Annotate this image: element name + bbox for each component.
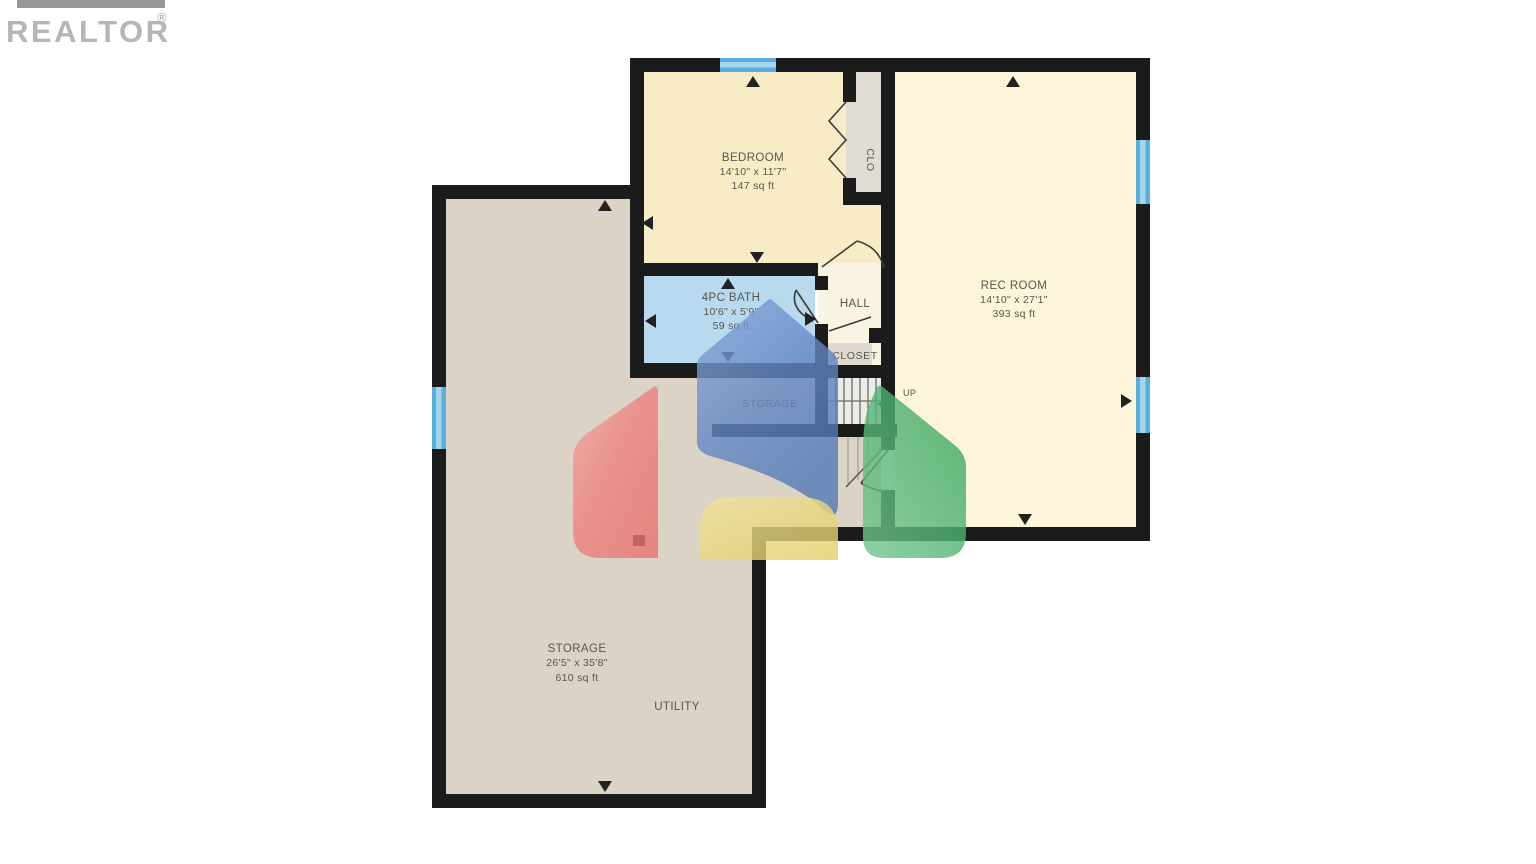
window	[1136, 377, 1150, 433]
wall-storage-top	[432, 185, 644, 199]
wall-storage-left	[432, 185, 446, 808]
floor-plan-image: BEDROOM 14'10" x 11'7" 147 sq ft CLO REC…	[0, 0, 1536, 864]
wall-right	[1136, 58, 1150, 541]
wall-clo-top-stub	[843, 72, 856, 102]
bedroom-area: 147 sq ft	[732, 180, 775, 192]
clo-label: CLO	[864, 148, 876, 171]
storage-area: 610 sq ft	[556, 672, 599, 684]
storage-dims: 26'5" x 35'8"	[546, 657, 608, 669]
rec-room-label: REC ROOM	[981, 280, 1047, 292]
storage-label: STORAGE	[548, 643, 607, 655]
window	[432, 387, 446, 449]
realtor-logo-text: REALTOR	[6, 14, 170, 49]
window	[1136, 140, 1150, 204]
wall-bedroom-bottom	[630, 263, 818, 276]
bath-label: 4PC BATH	[702, 292, 761, 304]
bedroom-label: BEDROOM	[722, 152, 784, 164]
window	[720, 58, 776, 72]
wall-storage-right	[752, 541, 766, 808]
rec-room-dims: 14'10" x 27'1"	[980, 294, 1048, 306]
bedroom-dims: 14'10" x 11'7"	[720, 166, 787, 178]
registered-mark: ®	[157, 10, 167, 25]
rec-room-area: 393 sq ft	[993, 308, 1036, 320]
stairs-up-label: UP	[903, 388, 916, 398]
utility-label: UTILITY	[654, 701, 700, 713]
realtor-logo-bar	[17, 0, 165, 8]
floor-plan-page: BEDROOM 14'10" x 11'7" 147 sq ft CLO REC…	[0, 0, 1536, 864]
logo-yellow-segment	[700, 497, 838, 560]
wall-bath-right-a	[815, 276, 828, 290]
realtor-logo: REALTOR ®	[6, 0, 170, 49]
wall-left-upper	[630, 58, 644, 377]
closet-label: CLOSET	[832, 350, 878, 362]
wall-storage-bottom	[432, 794, 766, 808]
hall-label: HALL	[840, 298, 871, 310]
wall-hall-stub	[869, 328, 881, 343]
